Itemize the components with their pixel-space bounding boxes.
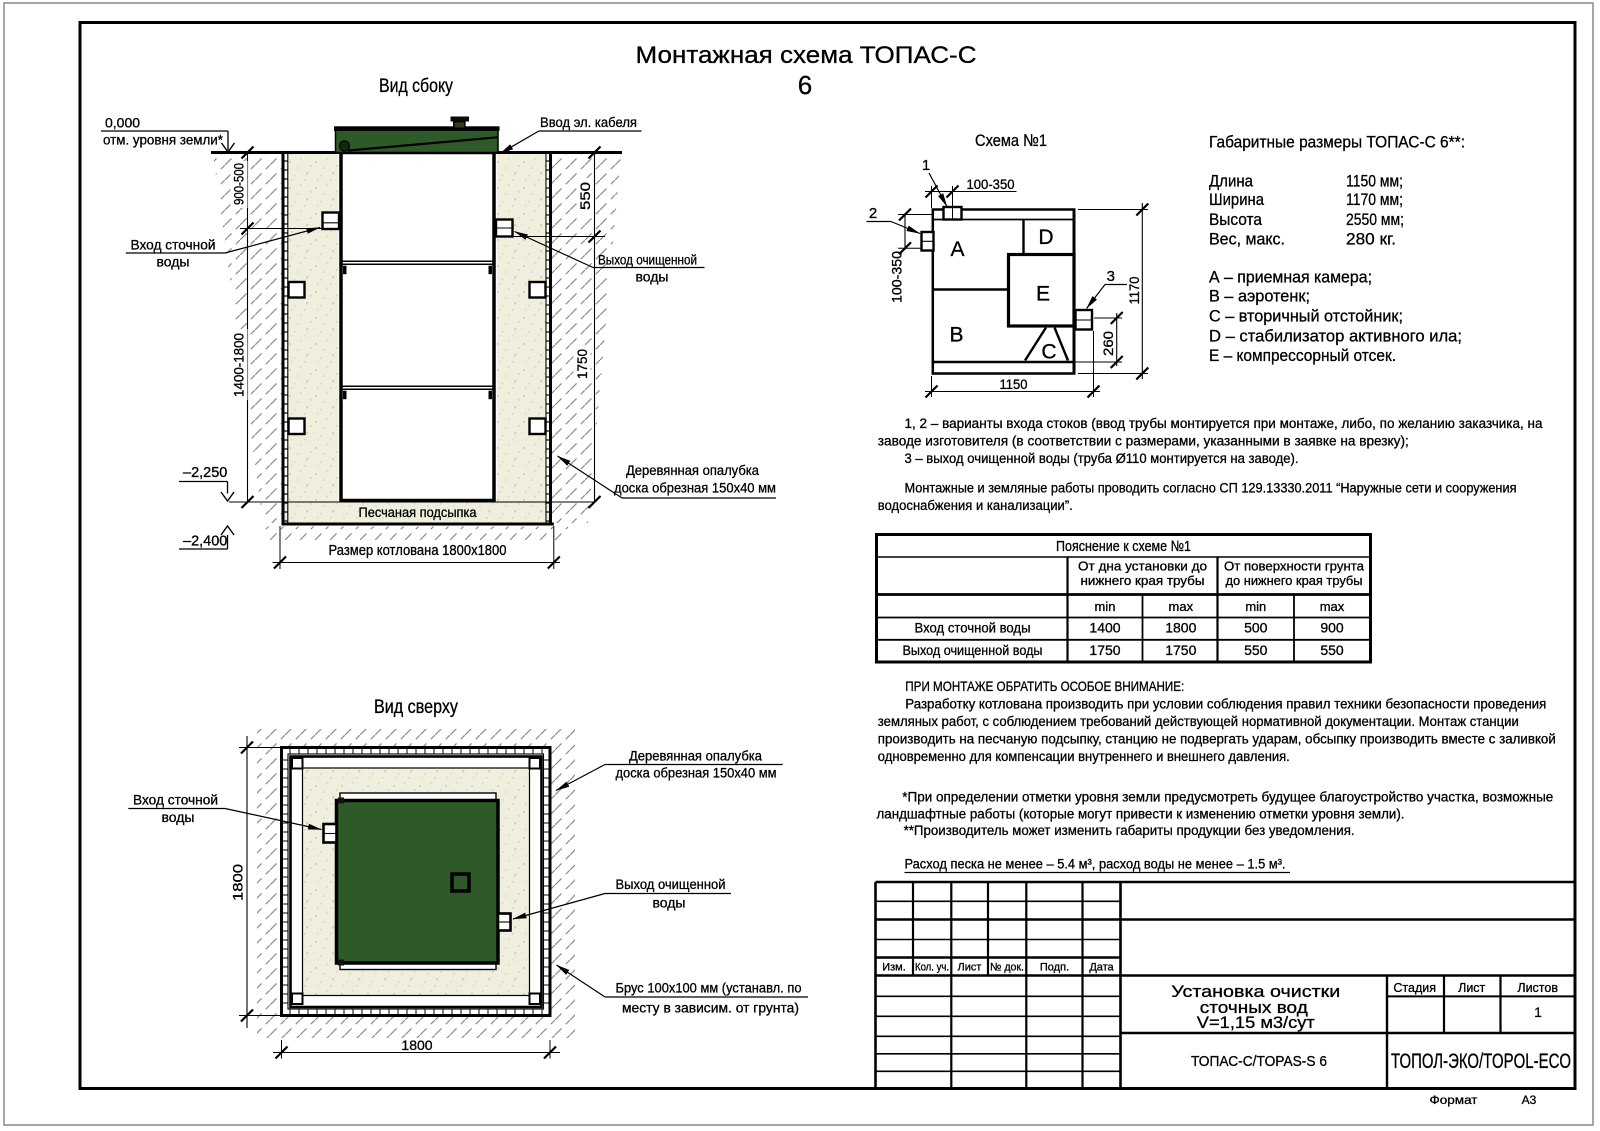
svg-text:1750: 1750 xyxy=(1089,642,1120,658)
svg-text:доска обрезная 150х40 мм: доска обрезная 150х40 мм xyxy=(614,480,776,496)
svg-text:Брус 100х100 мм (устанавл. по: Брус 100х100 мм (устанавл. по xyxy=(616,980,802,996)
svg-text:1170: 1170 xyxy=(1127,277,1142,305)
svg-text:воды: воды xyxy=(162,809,195,825)
svg-text:Выход очищенной воды: Выход очищенной воды xyxy=(903,642,1043,658)
svg-text:1750: 1750 xyxy=(575,349,590,379)
svg-text:–2,400: –2,400 xyxy=(183,534,227,550)
svg-text:Ширина: Ширина xyxy=(1209,190,1264,209)
svg-text:Деревянная опалубка: Деревянная опалубка xyxy=(629,748,762,764)
svg-text:550: 550 xyxy=(578,182,593,210)
svg-text:ТОПАС-С/TOPAS-S 6: ТОПАС-С/TOPAS-S 6 xyxy=(1191,1053,1327,1070)
svg-text:260: 260 xyxy=(1101,331,1116,356)
svg-text:3 – выход очищенной воды (труб: 3 – выход очищенной воды (труба Ø110 мон… xyxy=(905,451,1299,466)
svg-text:производить на песчаную подсып: производить на песчаную подсыпку, станци… xyxy=(878,732,1556,747)
svg-text:Песчаная подсыпка: Песчаная подсыпка xyxy=(359,504,477,520)
svg-text:500: 500 xyxy=(1244,620,1268,636)
svg-text:min: min xyxy=(1245,599,1266,614)
svg-text:Разработку котлована производи: Разработку котлована производить при усл… xyxy=(905,697,1546,712)
svg-text:1750: 1750 xyxy=(1165,642,1196,658)
svg-text:воды: воды xyxy=(157,254,190,270)
svg-text:Вид сверху: Вид сверху xyxy=(374,697,458,718)
svg-text:Лист: Лист xyxy=(1458,981,1485,995)
svg-text:Длина: Длина xyxy=(1209,172,1253,191)
svg-text:1170 мм;: 1170 мм; xyxy=(1346,190,1403,209)
svg-text:одновременно для компенсации в: одновременно для компенсации внутреннего… xyxy=(878,749,1290,764)
svg-text:Выход очищенной: Выход очищенной xyxy=(598,252,697,268)
svg-text:1400: 1400 xyxy=(1089,620,1120,636)
svg-text:Вид сбоку: Вид сбоку xyxy=(379,76,453,97)
svg-text:1800: 1800 xyxy=(1165,620,1196,636)
svg-text:доска обрезная 150х40 мм: доска обрезная 150х40 мм xyxy=(616,765,777,781)
svg-text:Е – компрессорный отсек.: Е – компрессорный отсек. xyxy=(1209,346,1396,365)
svg-text:ТОПОЛ-ЭКО/TOPOL-ECO: ТОПОЛ-ЭКО/TOPOL-ECO xyxy=(1391,1050,1571,1073)
svg-text:V=1,15 м3/сут: V=1,15 м3/сут xyxy=(1197,1014,1315,1032)
svg-text:1150 мм;: 1150 мм; xyxy=(1346,172,1403,191)
svg-text:1800: 1800 xyxy=(230,864,246,901)
svg-text:2550 мм;: 2550 мм; xyxy=(1346,210,1404,229)
svg-text:–2,250: –2,250 xyxy=(183,465,227,481)
svg-text:ландшафтные работы (которые мо: ландшафтные работы (которые могут привес… xyxy=(877,807,1405,822)
svg-text:**Производитель может изменить: **Производитель может изменить габариты … xyxy=(904,823,1355,838)
svg-text:D: D xyxy=(1038,226,1053,249)
svg-text:В – аэротенк;: В – аэротенк; xyxy=(1209,287,1310,306)
svg-text:Габаритные размеры ТОПАС-С 6**: Габаритные размеры ТОПАС-С 6**: xyxy=(1209,133,1465,152)
svg-text:От поверхности грунта: От поверхности грунта xyxy=(1224,560,1364,574)
svg-text:max: max xyxy=(1169,599,1194,614)
svg-text:900: 900 xyxy=(1320,620,1344,636)
svg-text:до нижнего края трубы: до нижнего края трубы xyxy=(1226,574,1363,588)
svg-text:А – приемная камера;: А – приемная камера; xyxy=(1209,268,1372,287)
svg-text:воды: воды xyxy=(653,895,686,911)
svg-text:заводе изготовителя (в соответ: заводе изготовителя (в соответствии с ра… xyxy=(878,434,1409,449)
svg-text:А3: А3 xyxy=(1522,1093,1537,1107)
svg-text:Изм.: Изм. xyxy=(882,962,906,974)
svg-text:ПРИ МОНТАЖЕ ОБРАТИТЬ ОСОБОЕ ВН: ПРИ МОНТАЖЕ ОБРАТИТЬ ОСОБОЕ ВНИМАНИЕ: xyxy=(905,679,1184,694)
svg-text:550: 550 xyxy=(1320,642,1344,658)
svg-text:Деревянная опалубка: Деревянная опалубка xyxy=(626,462,759,478)
svg-text:Размер котлована 1800х1800: Размер котлована 1800х1800 xyxy=(329,543,507,559)
svg-text:Дата: Дата xyxy=(1089,962,1114,974)
svg-text:месту в зависим. от грунта): месту в зависим. от грунта) xyxy=(622,1000,799,1016)
svg-text:водоснабжения и канализации”.: водоснабжения и канализации”. xyxy=(878,498,1073,513)
svg-text:С: С xyxy=(1041,341,1056,364)
svg-text:0,000: 0,000 xyxy=(105,115,140,131)
svg-text:нижнего края трубы: нижнего края трубы xyxy=(1081,574,1205,588)
svg-text:Ввод эл. кабеля: Ввод эл. кабеля xyxy=(540,114,637,130)
svg-text:1400-1800: 1400-1800 xyxy=(232,333,247,397)
svg-text:550: 550 xyxy=(1244,642,1268,658)
svg-text:1800: 1800 xyxy=(401,1037,432,1053)
svg-text:земляных работ, с соблюдением: земляных работ, с соблюдением требований… xyxy=(878,714,1519,729)
svg-text:Выход очищенной: Выход очищенной xyxy=(616,876,726,892)
svg-text:1: 1 xyxy=(922,157,930,174)
svg-text:отм. уровня земли*: отм. уровня земли* xyxy=(103,132,224,148)
svg-text:Монтажные и земляные работы пр: Монтажные и земляные работы проводить со… xyxy=(905,481,1517,496)
svg-text:От дна установки до: От дна установки до xyxy=(1078,560,1207,574)
svg-text:Схема №1: Схема №1 xyxy=(975,131,1047,150)
svg-text:Вход сточной: Вход сточной xyxy=(131,237,216,253)
svg-text:Лист: Лист xyxy=(958,962,982,974)
svg-text:Вес, макс.: Вес, макс. xyxy=(1209,230,1285,249)
svg-text:Вход сточной: Вход сточной xyxy=(133,792,218,808)
svg-text:max: max xyxy=(1320,599,1345,614)
svg-text:6: 6 xyxy=(798,70,812,100)
svg-text:2: 2 xyxy=(869,205,877,222)
svg-text:Монтажная схема ТОПАС-С: Монтажная схема ТОПАС-С xyxy=(636,42,977,69)
svg-text:3: 3 xyxy=(1107,268,1115,285)
svg-text:1: 1 xyxy=(1534,1004,1542,1020)
svg-text:Стадия: Стадия xyxy=(1393,981,1436,995)
svg-text:Высота: Высота xyxy=(1209,210,1262,229)
svg-text:D – стабилизатор активного ила: D – стабилизатор активного ила; xyxy=(1209,327,1462,346)
svg-text:Расход песка не менее – 5.4 м³: Расход песка не менее – 5.4 м³, расход в… xyxy=(905,857,1286,872)
svg-text:С – вторичный отстойник;: С – вторичный отстойник; xyxy=(1209,307,1403,326)
svg-text:Пояснение к схеме №1: Пояснение к схеме №1 xyxy=(1056,538,1191,555)
svg-text:Е: Е xyxy=(1036,283,1050,306)
svg-text:100-350: 100-350 xyxy=(967,177,1015,192)
svg-text:min: min xyxy=(1095,599,1116,614)
svg-text:Вход сточной воды: Вход сточной воды xyxy=(915,620,1031,636)
svg-text:900-500: 900-500 xyxy=(232,163,247,205)
svg-text:№ док.: № док. xyxy=(990,962,1024,974)
svg-text:Формат: Формат xyxy=(1430,1093,1479,1107)
svg-text:Кол. уч.: Кол. уч. xyxy=(915,962,949,974)
svg-text:Подп.: Подп. xyxy=(1040,962,1069,974)
svg-text:А: А xyxy=(950,238,964,261)
svg-text:*При определении отметки уровн: *При определении отметки уровня земли пр… xyxy=(902,790,1553,805)
svg-text:В: В xyxy=(949,324,963,347)
svg-text:100-350: 100-350 xyxy=(890,251,905,303)
svg-text:1150: 1150 xyxy=(1000,377,1028,392)
svg-text:280 кг.: 280 кг. xyxy=(1346,230,1396,249)
svg-text:Листов: Листов xyxy=(1517,981,1558,995)
svg-text:1, 2 – варианты входа стоков: 1, 2 – варианты входа стоков (ввод трубы… xyxy=(905,416,1543,431)
svg-text:воды: воды xyxy=(636,269,669,285)
